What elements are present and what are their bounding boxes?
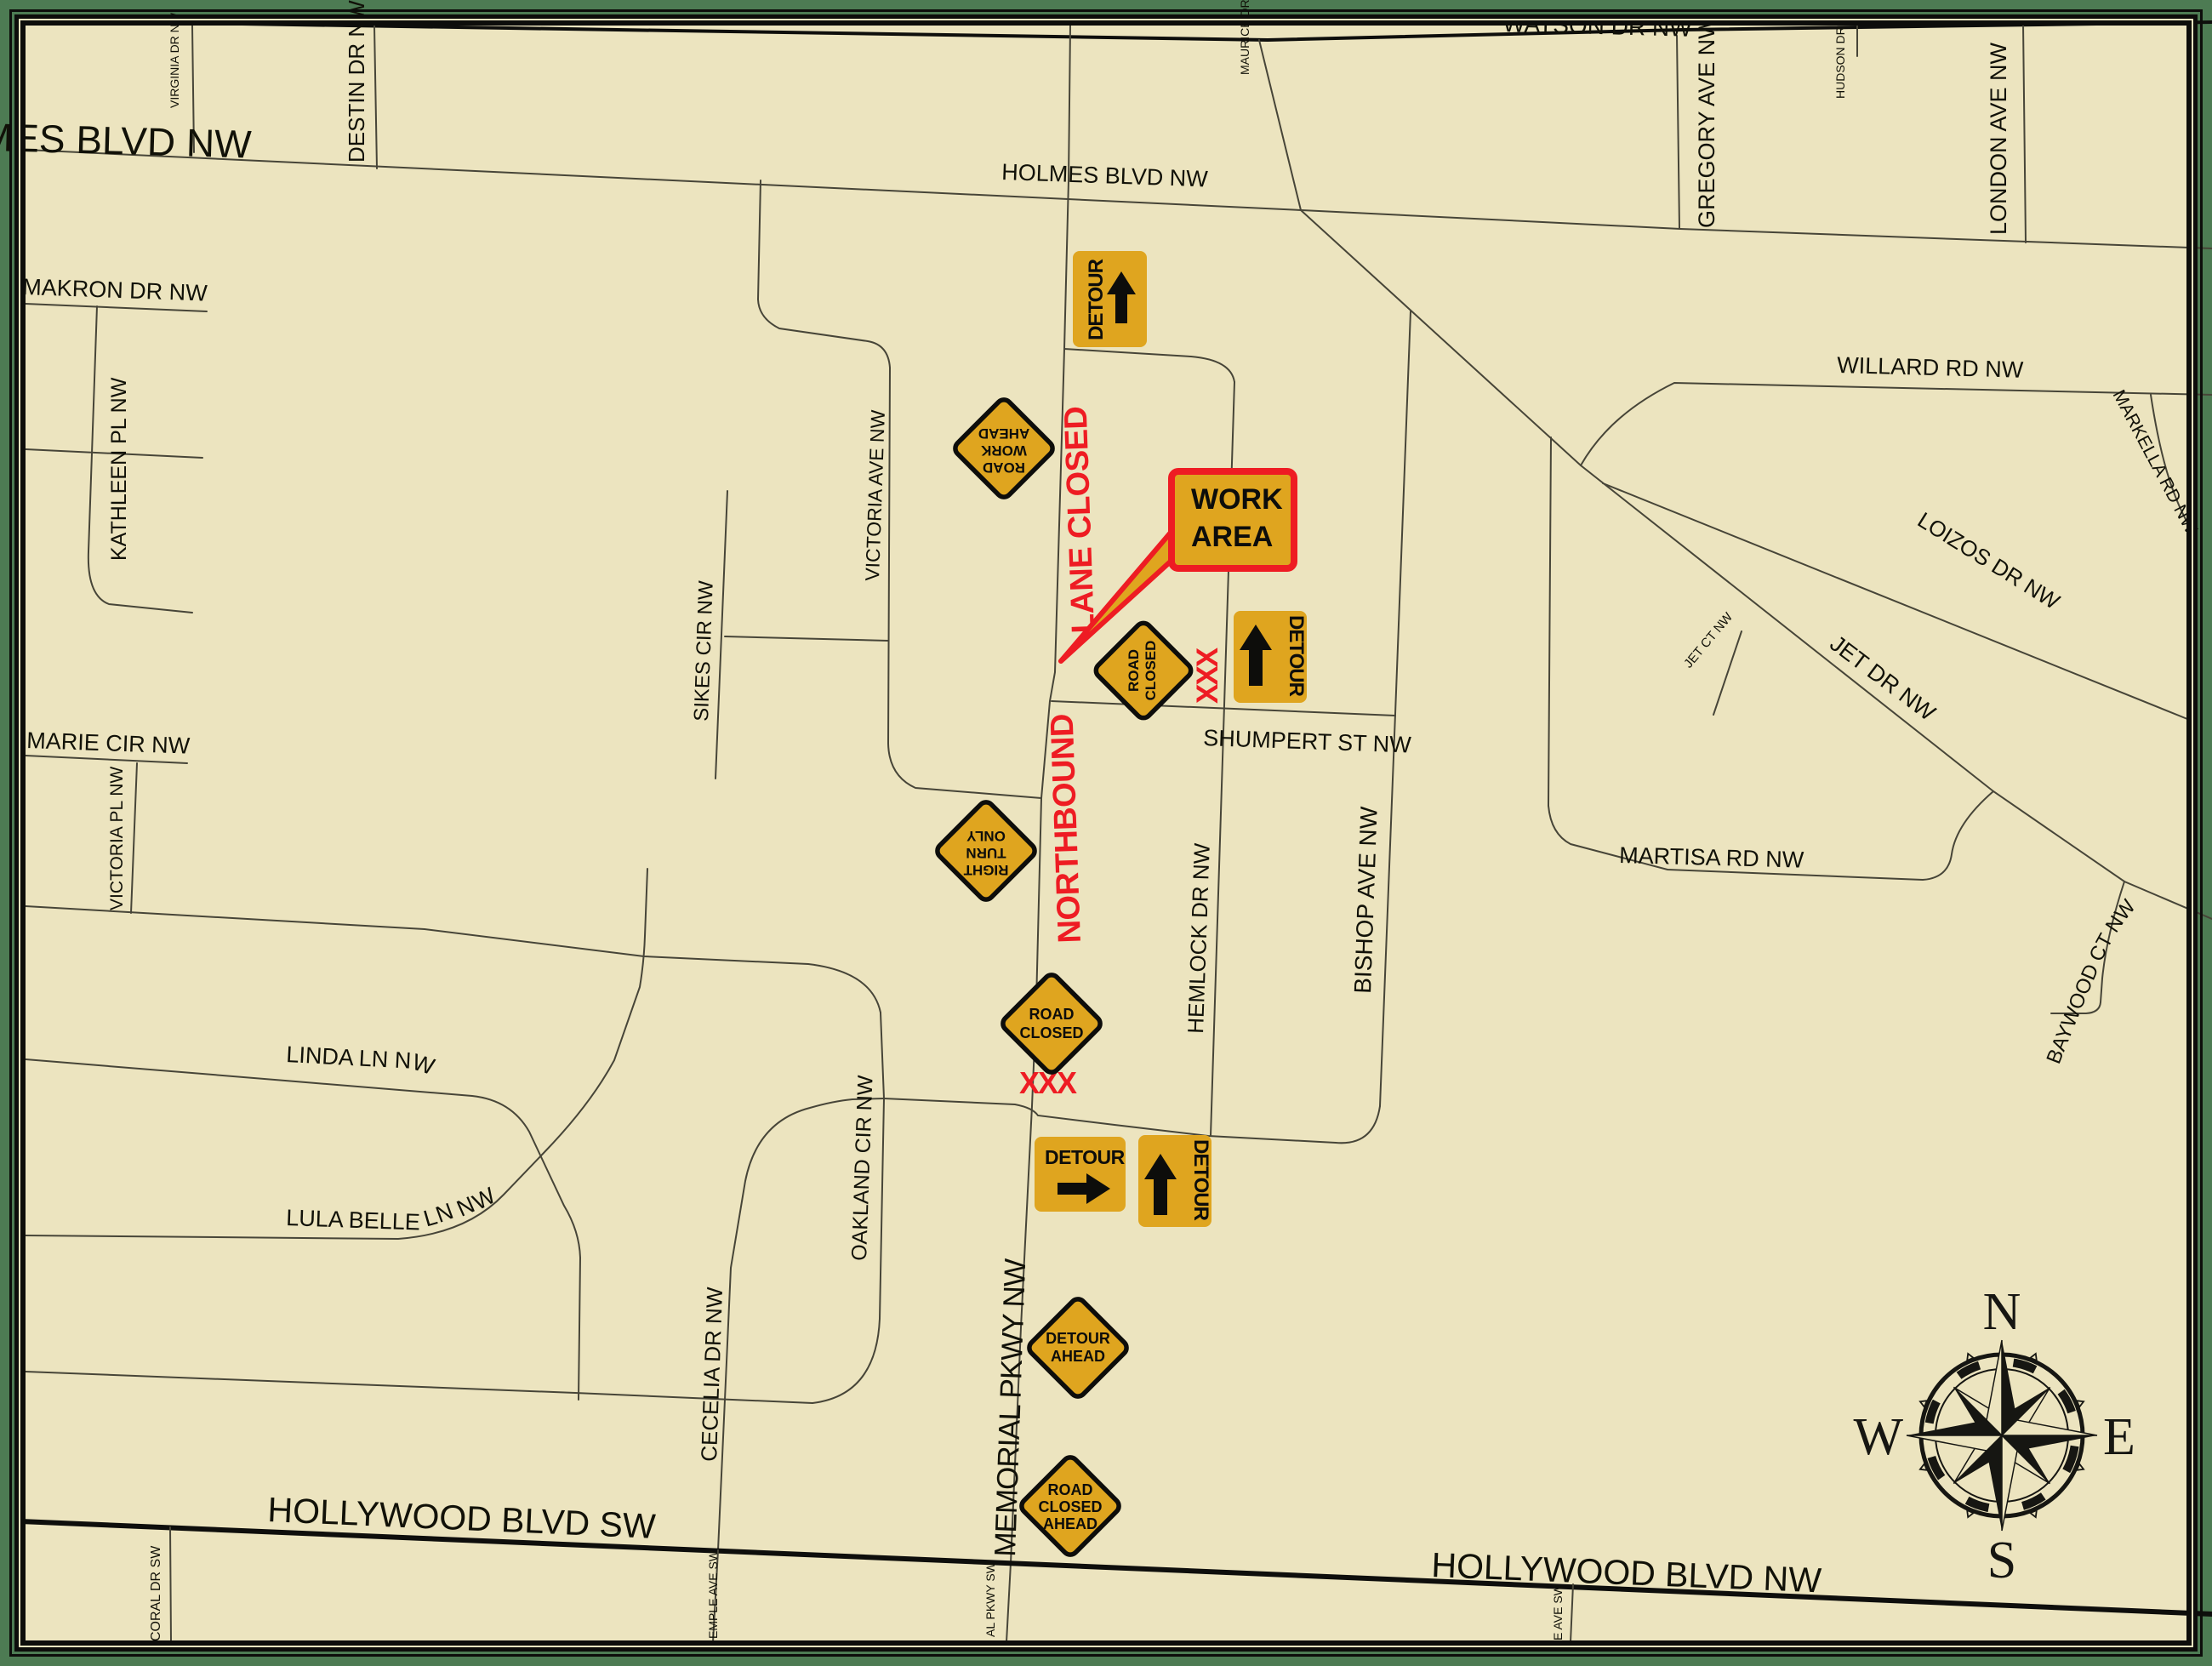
svg-text:CLOSED: CLOSED bbox=[1143, 641, 1159, 701]
svg-text:AL PKWY SW: AL PKWY SW bbox=[983, 1561, 997, 1637]
svg-text:ROAD: ROAD bbox=[1126, 649, 1142, 692]
svg-text:CORAL DR SW: CORAL DR SW bbox=[149, 1545, 163, 1641]
svg-text:AREA: AREA bbox=[1191, 521, 1273, 553]
svg-text:E: E bbox=[2103, 1408, 2135, 1466]
svg-text:AHEAD: AHEAD bbox=[1051, 1348, 1105, 1365]
svg-text:RIGHT: RIGHT bbox=[963, 862, 1009, 878]
svg-text:HOLMES BLVD NW: HOLMES BLVD NW bbox=[0, 112, 253, 167]
svg-text:DETOUR: DETOUR bbox=[1285, 615, 1308, 697]
svg-text:ONLY: ONLY bbox=[966, 828, 1006, 844]
svg-text:GREGORY AVE NW: GREGORY AVE NW bbox=[1694, 17, 1719, 228]
svg-text:WORK: WORK bbox=[980, 442, 1027, 459]
svg-text:AHEAD: AHEAD bbox=[978, 425, 1029, 442]
svg-text:XXX: XXX bbox=[1191, 647, 1224, 704]
svg-text:CLOSED: CLOSED bbox=[1038, 1498, 1102, 1515]
svg-text:MARTISA RD NW: MARTISA RD NW bbox=[1619, 842, 1804, 873]
svg-text:CLOSED: CLOSED bbox=[1019, 1024, 1083, 1041]
svg-text:WILLARD RD NW: WILLARD RD NW bbox=[1837, 352, 2024, 383]
svg-text:VIRGINIA DR NW: VIRGINIA DR NW bbox=[168, 12, 181, 108]
svg-text:TURN: TURN bbox=[966, 845, 1006, 861]
svg-text:N: N bbox=[1983, 1283, 2021, 1341]
svg-text:E AVE SW: E AVE SW bbox=[1551, 1583, 1565, 1640]
svg-text:ROAD: ROAD bbox=[1029, 1006, 1075, 1023]
svg-text:DETOUR: DETOUR bbox=[1085, 259, 1108, 340]
svg-text:EMPLE AVE SW: EMPLE AVE SW bbox=[706, 1549, 720, 1639]
svg-text:KATHLEEN PL NW: KATHLEEN PL NW bbox=[107, 377, 131, 561]
svg-text:HUDSON DR N: HUDSON DR N bbox=[1833, 14, 1847, 99]
svg-text:DETOUR: DETOUR bbox=[1045, 1146, 1126, 1168]
svg-text:SIKES CIR NW: SIKES CIR NW bbox=[690, 580, 718, 722]
svg-text:ROAD: ROAD bbox=[983, 459, 1025, 476]
svg-text:ROAD: ROAD bbox=[1048, 1481, 1093, 1498]
svg-text:DETOUR: DETOUR bbox=[1189, 1139, 1212, 1221]
svg-text:S: S bbox=[1987, 1532, 2016, 1589]
svg-text:VICTORIA PL NW: VICTORIA PL NW bbox=[107, 767, 127, 910]
svg-text:AHEAD: AHEAD bbox=[1043, 1515, 1097, 1532]
svg-text:LONDON AVE NW: LONDON AVE NW bbox=[1986, 42, 2011, 235]
svg-text:DETOUR: DETOUR bbox=[1046, 1330, 1110, 1347]
svg-text:W: W bbox=[1853, 1408, 1903, 1466]
svg-text:WORK: WORK bbox=[1191, 483, 1283, 516]
